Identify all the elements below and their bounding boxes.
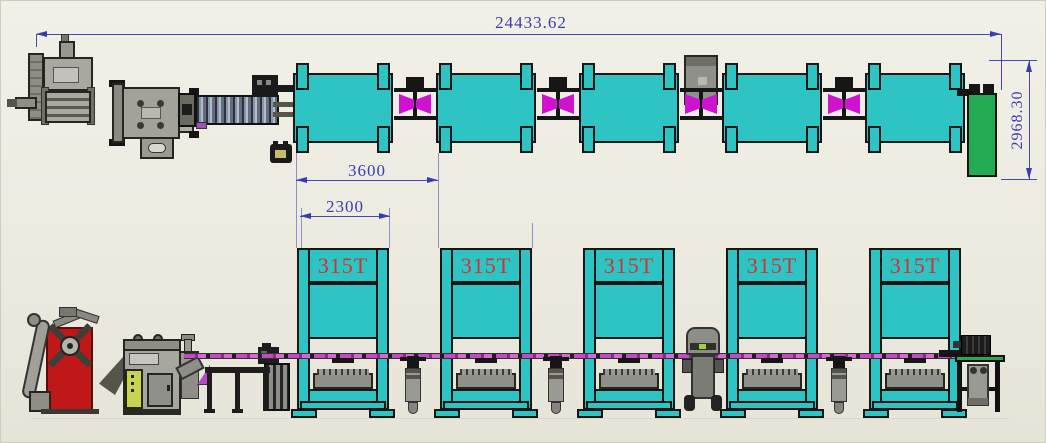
transfer-motor-icon: [406, 77, 424, 88]
pedestal-robot-3: [826, 356, 852, 414]
rail-bracket: [761, 358, 783, 363]
press-front-1: 315T: [297, 248, 389, 420]
press-top-5: [865, 63, 965, 153]
press-tonnage-label: 315T: [747, 253, 797, 279]
dim-height-text: 2968.30: [1009, 75, 1029, 165]
rail-bracket: [332, 358, 354, 363]
press-tonnage-label: 315T: [890, 253, 940, 279]
press-tonnage-label: 315T: [318, 253, 368, 279]
dim-pitch-text: 3600: [331, 161, 403, 181]
press-bolster: [313, 373, 373, 389]
dim-total-ext-left: [36, 34, 37, 47]
pedestal-robot-1: [400, 356, 426, 414]
dim-pitch-arrow-left: [296, 177, 307, 183]
dim-height-ext-top: [989, 60, 1037, 61]
press-front-2: 315T: [440, 248, 532, 420]
rail-bracket: [618, 358, 640, 363]
mobile-robot-icon: [682, 327, 724, 415]
dim-pitch-ext-left: [296, 153, 297, 248]
press-top-1: [293, 63, 393, 153]
dim-height-arrow-top: [1026, 61, 1032, 72]
press-crown: 315T: [308, 248, 378, 283]
feeder-bracket-icon: [252, 75, 278, 97]
dim-total-text: 24433.62: [431, 13, 631, 33]
dim-total-line: [36, 34, 1001, 35]
dim-pitch-arrow-right: [427, 177, 438, 183]
dim-height-arrow-bottom: [1026, 168, 1032, 179]
press-top-2: [436, 63, 536, 153]
dim-total-arrow-right: [990, 31, 1001, 37]
transfer-station-top-3: [683, 77, 719, 123]
press-tonnage-label: 315T: [604, 253, 654, 279]
control-panel-icon: [125, 369, 143, 409]
dim-total-arrow-left: [36, 31, 47, 37]
press-top-3: [579, 63, 679, 153]
transfer-station-top-2: [540, 77, 576, 123]
press-front-4: 315T: [726, 248, 818, 420]
press-front-5: 315T: [869, 248, 961, 420]
dim-width-text: 2300: [300, 197, 390, 217]
cad-drawing-canvas: 24433.62 2968.30: [0, 0, 1046, 443]
rail-bracket: [475, 358, 497, 363]
end-motor-icon: [961, 335, 991, 355]
rail-bracket: [904, 358, 926, 363]
dim-height-line: [1029, 61, 1030, 179]
dim-total-ext-right: [1001, 34, 1002, 90]
press-slide: [308, 283, 378, 339]
transfer-station-top-1: [397, 77, 433, 123]
transfer-station-top-4: [826, 77, 862, 123]
pedestal-robot-2: [543, 356, 569, 414]
press-top-4: [722, 63, 822, 153]
dim-height-ext-bottom: [1001, 179, 1037, 180]
press-tonnage-label: 315T: [461, 253, 511, 279]
projection-line: [532, 223, 533, 248]
dim-pitch-ext-right: [438, 153, 439, 248]
press-front-3: 315T: [583, 248, 675, 420]
